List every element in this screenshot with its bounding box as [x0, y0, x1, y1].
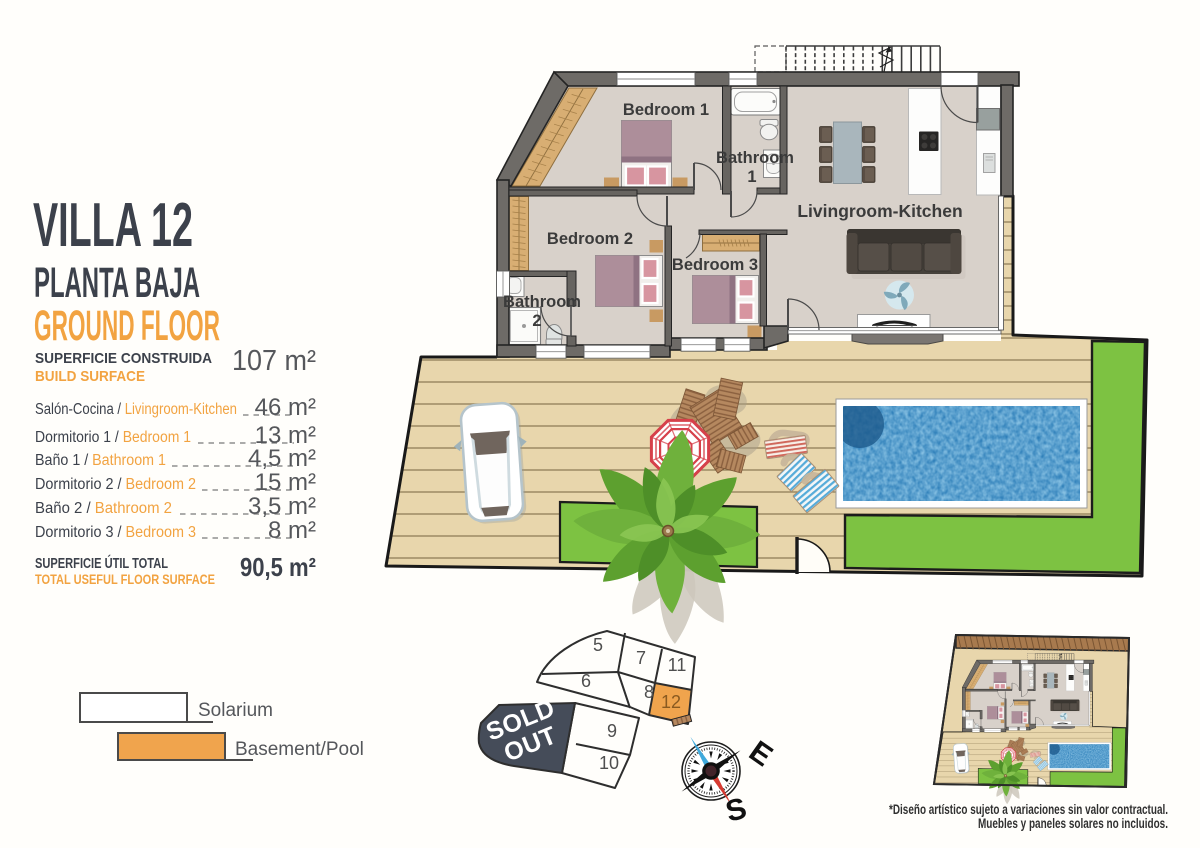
svg-text:6: 6: [581, 671, 591, 691]
svg-text:7: 7: [636, 648, 646, 668]
svg-text:Bedroom 3: Bedroom 3: [672, 256, 758, 274]
svg-text:Dormitorio 1 / Bedroom 1: Dormitorio 1 / Bedroom 1: [35, 429, 191, 446]
svg-text:8 m²: 8 m²: [268, 517, 316, 544]
svg-text:SUPERFICIE ÚTIL TOTAL: SUPERFICIE ÚTIL TOTAL: [35, 554, 168, 572]
svg-text:1: 1: [747, 168, 756, 186]
svg-text:3,5 m²: 3,5 m²: [248, 493, 316, 520]
svg-text:Dormitorio 2 / Bedroom 2: Dormitorio 2 / Bedroom 2: [35, 476, 196, 493]
svg-text:107 m²: 107 m²: [232, 345, 316, 377]
svg-text:12: 12: [661, 692, 681, 712]
svg-text:SUPERFICIE CONSTRUIDA: SUPERFICIE CONSTRUIDA: [35, 350, 212, 367]
svg-text:Solarium: Solarium: [198, 700, 273, 721]
svg-text:Bedroom 2: Bedroom 2: [547, 230, 633, 248]
svg-text:Bathroom: Bathroom: [503, 293, 581, 311]
svg-text:Bathroom: Bathroom: [716, 149, 794, 167]
svg-text:Livingroom-Kitchen: Livingroom-Kitchen: [797, 201, 962, 221]
svg-text:8: 8: [644, 682, 654, 702]
svg-text:BUILD SURFACE: BUILD SURFACE: [35, 368, 145, 385]
svg-text:Baño 2 / Bathroom 2: Baño 2 / Bathroom 2: [35, 500, 172, 517]
svg-text:TOTAL USEFUL FLOOR SURFACE: TOTAL USEFUL FLOOR SURFACE: [35, 571, 215, 587]
svg-text:4,5 m²: 4,5 m²: [248, 445, 316, 472]
svg-text:Bedroom 1: Bedroom 1: [623, 101, 709, 119]
svg-text:Muebles y paneles solares no i: Muebles y paneles solares no incluidos.: [978, 815, 1168, 831]
svg-text:VILLA 12: VILLA 12: [33, 191, 193, 260]
svg-text:15 m²: 15 m²: [255, 469, 316, 496]
svg-text:Baño 1 / Bathroom 1: Baño 1 / Bathroom 1: [35, 452, 166, 469]
svg-text:11: 11: [668, 655, 687, 675]
svg-text:9: 9: [607, 721, 617, 741]
svg-text:46 m²: 46 m²: [255, 394, 316, 421]
svg-text:10: 10: [599, 753, 619, 773]
svg-text:2: 2: [532, 312, 541, 330]
svg-text:Dormitorio 3 / Bedroom 3: Dormitorio 3 / Bedroom 3: [35, 524, 196, 541]
svg-text:GROUND FLOOR: GROUND FLOOR: [34, 302, 220, 350]
svg-text:PLANTA BAJA: PLANTA BAJA: [34, 259, 200, 307]
svg-text:Salón-Cocina / Livingroom-Kitc: Salón-Cocina / Livingroom-Kitchen: [35, 401, 237, 418]
svg-text:Basement/Pool: Basement/Pool: [235, 739, 364, 760]
svg-text:90,5 m²: 90,5 m²: [240, 552, 316, 582]
svg-text:5: 5: [593, 635, 603, 655]
